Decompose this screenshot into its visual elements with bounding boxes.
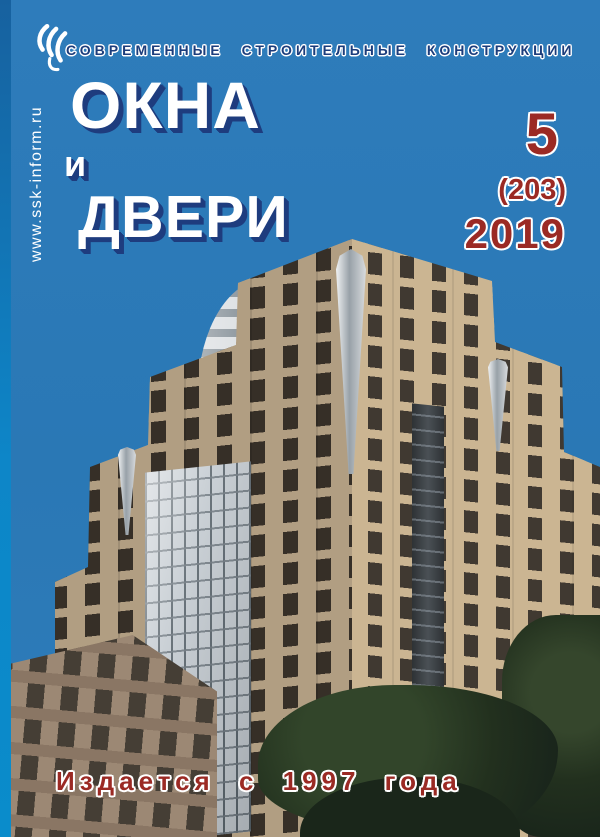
issue-series: (203)	[498, 176, 566, 205]
title-line-okna: ОКНА	[70, 72, 289, 138]
tagline: СОВРЕМЕННЫЕ СТРОИТЕЛЬНЫЕ КОНСТРУКЦИИ	[66, 42, 575, 58]
issue-year: 2019	[465, 213, 566, 255]
magazine-cover: СОВРЕМЕННЫЕ СТРОИТЕЛЬНЫЕ КОНСТРУКЦИИ www…	[0, 0, 600, 837]
title-line-dveri: ДВЕРИ	[78, 188, 289, 247]
issue-number: 5	[526, 106, 558, 164]
title-line-i: и	[64, 146, 289, 182]
published-since-line: Издается с 1997 года	[56, 766, 462, 797]
left-edge-strip	[0, 0, 11, 837]
issue-block: 5 (203) 2019	[465, 106, 566, 255]
building-photo	[0, 237, 600, 837]
website-url: www.ssk-inform.ru	[28, 66, 46, 262]
magazine-title: ОКНА и ДВЕРИ	[66, 72, 289, 247]
